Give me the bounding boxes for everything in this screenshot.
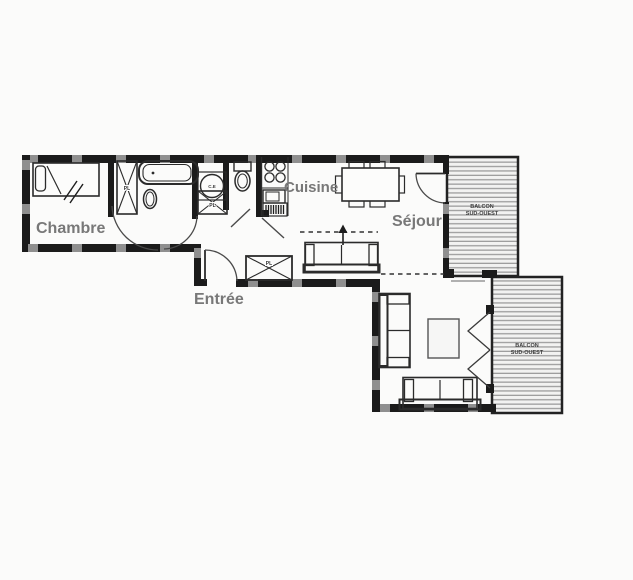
svg-text:SUD-OUEST: SUD-OUEST [511, 350, 544, 356]
french-doors-balcony [468, 312, 490, 388]
bath-mat [144, 190, 157, 209]
svg-text:BALCON: BALCON [515, 343, 539, 349]
sofa-vertical [379, 294, 410, 368]
svg-text:BALCON: BALCON [470, 204, 494, 210]
wall-balcony-junction-left [443, 269, 454, 278]
wardrobe-bathroom-label: PL [124, 186, 130, 192]
wc-door [231, 209, 250, 227]
wall-sejour-right-upper [443, 155, 449, 174]
svg-text:SUD-OUEST: SUD-OUEST [466, 211, 499, 217]
wall-entree-door-jamb [201, 279, 207, 286]
entry-door [205, 250, 237, 281]
chambre-door-arc [112, 206, 158, 250]
wardrobe-hall-label: PL [209, 203, 215, 209]
wardrobe-entree-label: PL [266, 261, 272, 267]
room-label-cuisine: Cuisine [284, 179, 338, 196]
bed [33, 163, 99, 196]
wall-left [22, 155, 30, 252]
coffee-table [428, 319, 459, 358]
room-label-chambre: Chambre [36, 220, 105, 237]
wardrobe-hall: PL [198, 191, 227, 214]
wall-chambre-right [108, 155, 114, 217]
wall-chambre-bottom [22, 244, 201, 252]
water-heater-label: C.E [208, 184, 216, 189]
floor-plan-drawing: C.E PL [0, 0, 633, 580]
balcony-door-sejour [416, 174, 445, 204]
floor-plan: C.E PL [0, 0, 633, 580]
sofa-sejour [304, 243, 380, 273]
wall-sejour-right-lower [443, 202, 449, 272]
wardrobe-entree: PL [246, 256, 292, 280]
wall-balcony-junction-right [482, 270, 497, 278]
kitchen-sink [263, 190, 285, 203]
stove-burners [265, 162, 285, 182]
room-label-sejour: Séjour [392, 213, 442, 230]
bathtub [139, 161, 198, 184]
toilet [234, 162, 251, 191]
wall-entree-left [194, 244, 201, 286]
kitchen-door [262, 218, 284, 238]
room-label-entree: Entrée [194, 291, 244, 308]
dining-table [336, 162, 405, 208]
